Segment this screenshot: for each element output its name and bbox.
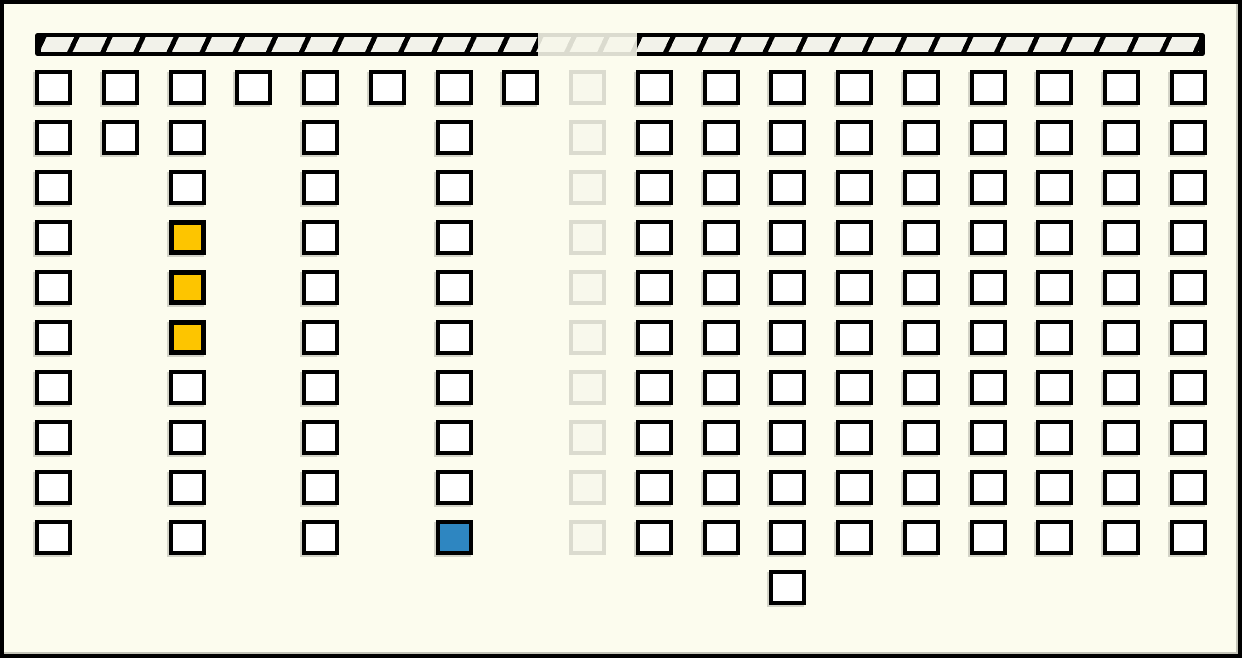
seat[interactable]	[769, 270, 806, 305]
seat[interactable]	[1036, 170, 1073, 205]
seat[interactable]	[436, 120, 473, 155]
seat[interactable]	[703, 520, 740, 555]
seat[interactable]	[102, 120, 139, 155]
seat[interactable]	[436, 320, 473, 355]
seat[interactable]	[1036, 420, 1073, 455]
seat[interactable]	[1103, 520, 1140, 555]
seat[interactable]	[636, 270, 673, 305]
seat[interactable]	[436, 220, 473, 255]
floor-plan	[0, 0, 1242, 658]
seat[interactable]	[769, 520, 806, 555]
seat[interactable]	[636, 220, 673, 255]
seat[interactable]	[35, 270, 72, 305]
seat[interactable]	[1170, 220, 1207, 255]
seat[interactable]	[302, 120, 339, 155]
seat[interactable]	[302, 520, 339, 555]
seat-faded[interactable]	[569, 70, 606, 105]
seat[interactable]	[1103, 220, 1140, 255]
seat[interactable]	[970, 370, 1007, 405]
seat[interactable]	[769, 320, 806, 355]
seat[interactable]	[703, 120, 740, 155]
seat[interactable]	[1170, 170, 1207, 205]
seat[interactable]	[436, 70, 473, 105]
seat[interactable]	[302, 270, 339, 305]
seat[interactable]	[436, 170, 473, 205]
seat[interactable]	[302, 370, 339, 405]
seat[interactable]	[1170, 370, 1207, 405]
seat[interactable]	[836, 270, 873, 305]
seat-faded[interactable]	[569, 270, 606, 305]
seat[interactable]	[703, 220, 740, 255]
seat-highlighted-yellow[interactable]	[169, 320, 206, 355]
seat[interactable]	[1170, 420, 1207, 455]
seat[interactable]	[703, 270, 740, 305]
seat-faded[interactable]	[569, 320, 606, 355]
seat[interactable]	[35, 170, 72, 205]
seat[interactable]	[1036, 70, 1073, 105]
seat[interactable]	[1103, 120, 1140, 155]
seat[interactable]	[302, 470, 339, 505]
seat[interactable]	[636, 470, 673, 505]
seat[interactable]	[636, 170, 673, 205]
seat[interactable]	[903, 170, 940, 205]
seat[interactable]	[970, 470, 1007, 505]
seat[interactable]	[836, 520, 873, 555]
seat[interactable]	[703, 370, 740, 405]
seat[interactable]	[35, 320, 72, 355]
seat[interactable]	[1103, 470, 1140, 505]
seat[interactable]	[703, 420, 740, 455]
seat[interactable]	[1103, 320, 1140, 355]
seat-highlighted-yellow[interactable]	[169, 270, 206, 305]
seat[interactable]	[235, 70, 272, 105]
seat[interactable]	[903, 70, 940, 105]
seat[interactable]	[1103, 270, 1140, 305]
seat[interactable]	[436, 470, 473, 505]
seat[interactable]	[703, 470, 740, 505]
seat[interactable]	[836, 420, 873, 455]
wall-segment-faded	[538, 33, 637, 56]
seat[interactable]	[169, 170, 206, 205]
seat[interactable]	[836, 320, 873, 355]
seat[interactable]	[35, 420, 72, 455]
seat[interactable]	[1103, 420, 1140, 455]
seat[interactable]	[636, 370, 673, 405]
seat-faded[interactable]	[569, 220, 606, 255]
wall-segment	[637, 33, 1205, 56]
seat[interactable]	[903, 420, 940, 455]
seat-highlighted-blue[interactable]	[436, 520, 473, 555]
seat[interactable]	[1036, 220, 1073, 255]
seat[interactable]	[1036, 120, 1073, 155]
seat[interactable]	[970, 220, 1007, 255]
seat[interactable]	[903, 120, 940, 155]
seat[interactable]	[636, 320, 673, 355]
seat[interactable]	[836, 370, 873, 405]
seat[interactable]	[636, 120, 673, 155]
seat[interactable]	[970, 270, 1007, 305]
seat[interactable]	[35, 120, 72, 155]
seat[interactable]	[169, 420, 206, 455]
seat[interactable]	[836, 70, 873, 105]
seat[interactable]	[903, 220, 940, 255]
wall-segment	[35, 33, 538, 56]
seat-faded[interactable]	[569, 470, 606, 505]
seat[interactable]	[169, 70, 206, 105]
seat[interactable]	[35, 370, 72, 405]
seat[interactable]	[1036, 370, 1073, 405]
seat[interactable]	[302, 220, 339, 255]
seat[interactable]	[903, 370, 940, 405]
seat[interactable]	[836, 220, 873, 255]
seat[interactable]	[970, 170, 1007, 205]
seat[interactable]	[836, 170, 873, 205]
seat[interactable]	[636, 70, 673, 105]
seat[interactable]	[1036, 270, 1073, 305]
seat[interactable]	[970, 120, 1007, 155]
seat[interactable]	[1170, 520, 1207, 555]
seat-highlighted-yellow[interactable]	[169, 220, 206, 255]
seat-faded[interactable]	[569, 520, 606, 555]
seat[interactable]	[1170, 270, 1207, 305]
seat[interactable]	[1170, 70, 1207, 105]
seat-faded[interactable]	[569, 120, 606, 155]
seat[interactable]	[836, 120, 873, 155]
seat[interactable]	[169, 120, 206, 155]
seat[interactable]	[903, 320, 940, 355]
seat[interactable]	[1103, 70, 1140, 105]
seat[interactable]	[302, 420, 339, 455]
seat[interactable]	[836, 470, 873, 505]
seat[interactable]	[1036, 520, 1073, 555]
seat[interactable]	[102, 70, 139, 105]
seat[interactable]	[169, 370, 206, 405]
seat[interactable]	[703, 170, 740, 205]
seat[interactable]	[502, 70, 539, 105]
seat[interactable]	[769, 120, 806, 155]
seat[interactable]	[970, 520, 1007, 555]
seat-faded[interactable]	[569, 170, 606, 205]
seat[interactable]	[1170, 320, 1207, 355]
seat[interactable]	[769, 170, 806, 205]
seat[interactable]	[436, 420, 473, 455]
seat[interactable]	[1170, 120, 1207, 155]
seat[interactable]	[169, 470, 206, 505]
seat[interactable]	[970, 320, 1007, 355]
seat[interactable]	[302, 70, 339, 105]
seat[interactable]	[769, 220, 806, 255]
seat[interactable]	[1036, 470, 1073, 505]
seat[interactable]	[35, 220, 72, 255]
seat[interactable]	[769, 470, 806, 505]
seat[interactable]	[1103, 370, 1140, 405]
seat[interactable]	[903, 470, 940, 505]
seat[interactable]	[302, 320, 339, 355]
seat[interactable]	[769, 70, 806, 105]
seat[interactable]	[1103, 170, 1140, 205]
seat[interactable]	[636, 520, 673, 555]
seat[interactable]	[436, 370, 473, 405]
seat[interactable]	[970, 70, 1007, 105]
seat[interactable]	[169, 520, 206, 555]
seat[interactable]	[436, 270, 473, 305]
seat[interactable]	[970, 420, 1007, 455]
seat[interactable]	[636, 420, 673, 455]
seat[interactable]	[769, 420, 806, 455]
seat[interactable]	[703, 320, 740, 355]
seat[interactable]	[769, 370, 806, 405]
seat-faded[interactable]	[569, 370, 606, 405]
seat[interactable]	[703, 70, 740, 105]
seat-faded[interactable]	[569, 420, 606, 455]
seat[interactable]	[35, 520, 72, 555]
seat[interactable]	[302, 170, 339, 205]
seat[interactable]	[1036, 320, 1073, 355]
seat[interactable]	[903, 520, 940, 555]
seat[interactable]	[769, 570, 806, 605]
seat[interactable]	[35, 470, 72, 505]
seat[interactable]	[903, 270, 940, 305]
seat[interactable]	[35, 70, 72, 105]
seat[interactable]	[1170, 470, 1207, 505]
seat[interactable]	[369, 70, 406, 105]
